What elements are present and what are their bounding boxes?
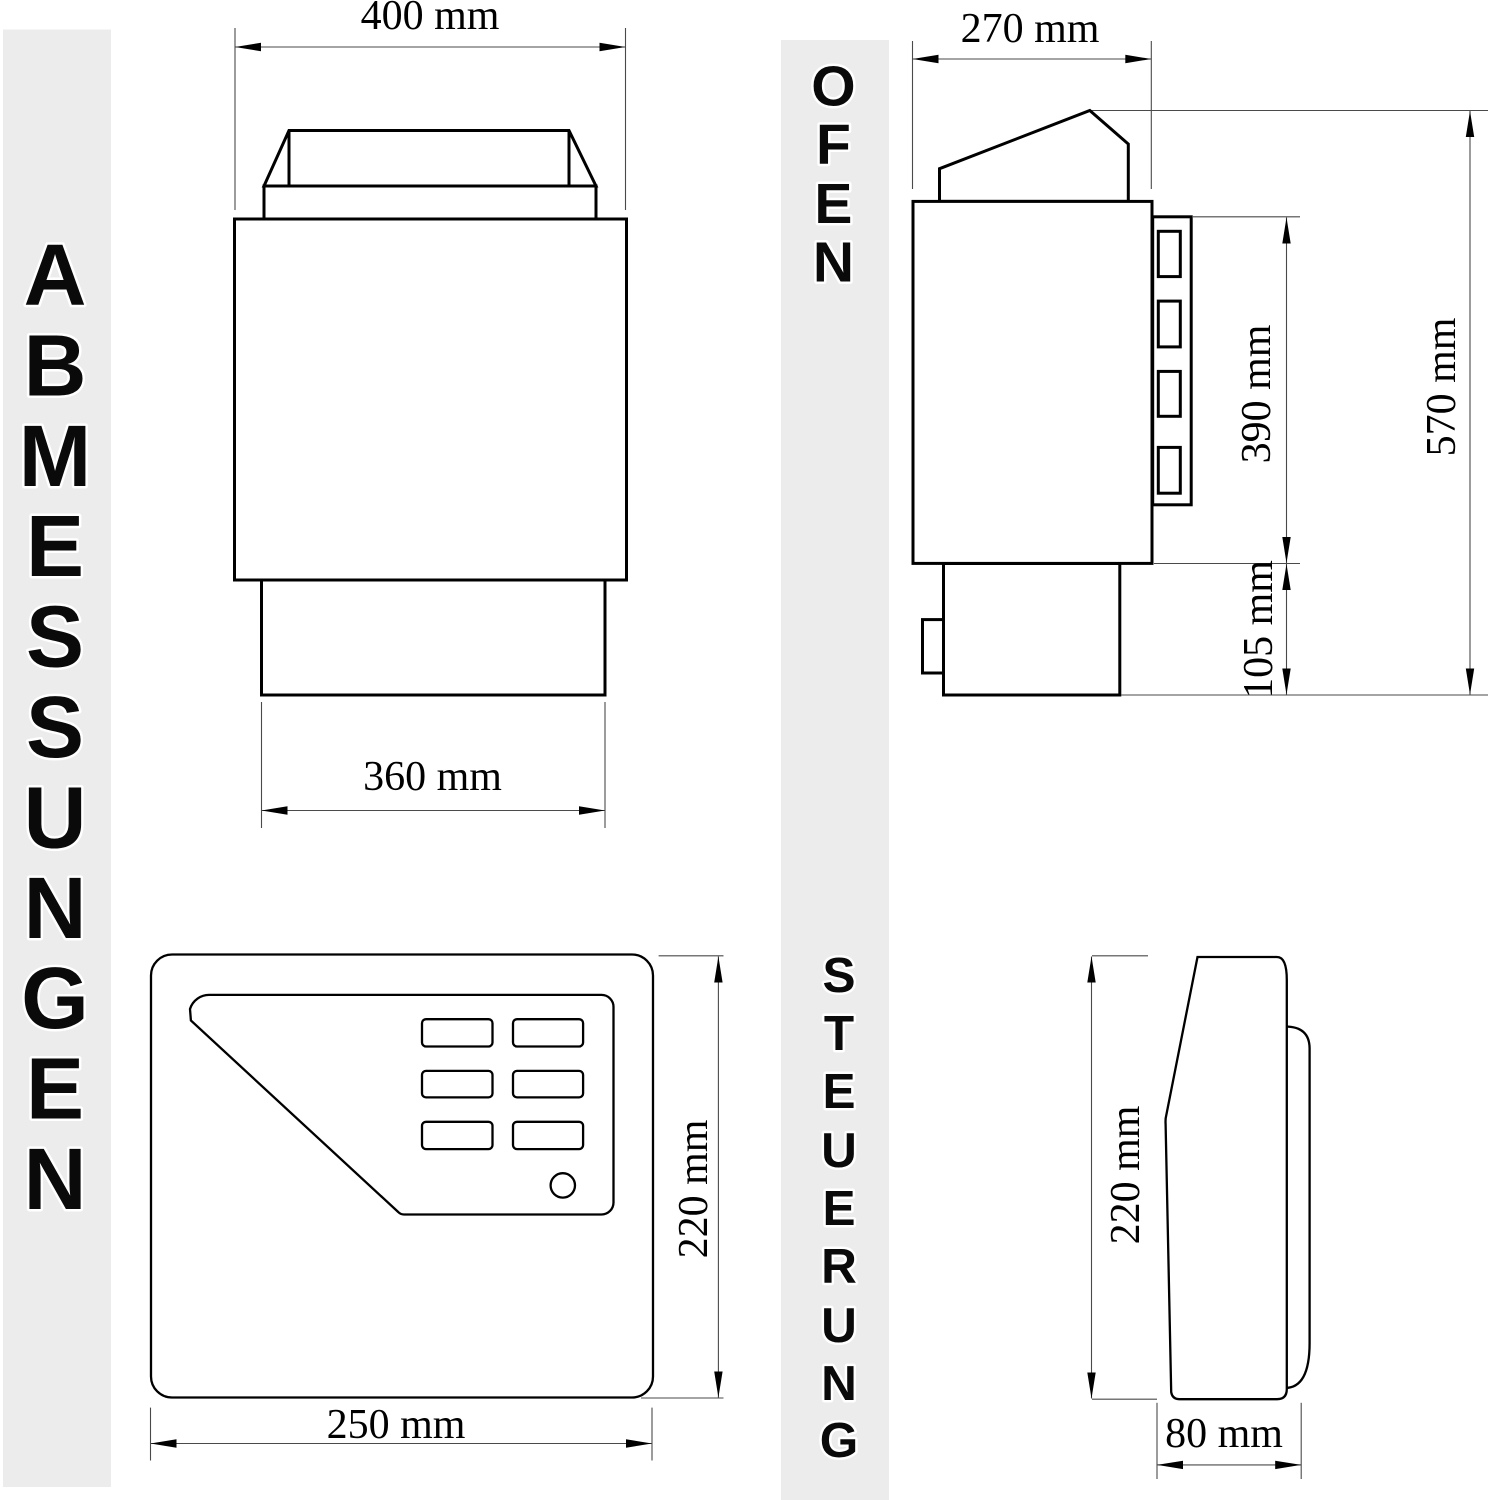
svg-text:E: E [26, 1041, 84, 1138]
svg-text:80 mm: 80 mm [1165, 1411, 1283, 1457]
svg-text:R: R [821, 1239, 857, 1294]
svg-text:G: G [820, 1413, 859, 1468]
svg-text:E: E [822, 1181, 855, 1236]
svg-text:E: E [26, 498, 84, 595]
svg-text:S: S [26, 589, 84, 686]
svg-text:N: N [813, 230, 854, 294]
svg-text:N: N [24, 1131, 87, 1228]
svg-text:E: E [814, 172, 852, 236]
svg-text:220 mm: 220 mm [671, 1119, 717, 1258]
svg-text:N: N [24, 860, 87, 957]
svg-text:U: U [24, 769, 87, 866]
svg-text:B: B [24, 317, 87, 414]
svg-text:N: N [821, 1356, 857, 1411]
svg-text:O: O [811, 55, 855, 119]
svg-text:U: U [821, 1298, 857, 1353]
svg-text:T: T [824, 1006, 854, 1061]
svg-text:250 mm: 250 mm [327, 1402, 466, 1448]
svg-text:390 mm: 390 mm [1234, 324, 1280, 463]
svg-text:105 mm: 105 mm [1236, 560, 1282, 699]
svg-text:U: U [821, 1123, 857, 1178]
svg-text:360 mm: 360 mm [363, 754, 502, 800]
svg-text:570 mm: 570 mm [1419, 317, 1465, 456]
svg-text:F: F [816, 113, 851, 177]
svg-text:220 mm: 220 mm [1103, 1105, 1149, 1244]
svg-text:270 mm: 270 mm [961, 6, 1100, 52]
svg-text:400 mm: 400 mm [361, 0, 500, 39]
svg-text:S: S [822, 948, 855, 1003]
svg-text:S: S [26, 679, 84, 776]
svg-text:M: M [19, 408, 91, 505]
svg-text:E: E [822, 1064, 855, 1119]
svg-text:G: G [21, 950, 89, 1047]
svg-text:A: A [24, 227, 87, 324]
